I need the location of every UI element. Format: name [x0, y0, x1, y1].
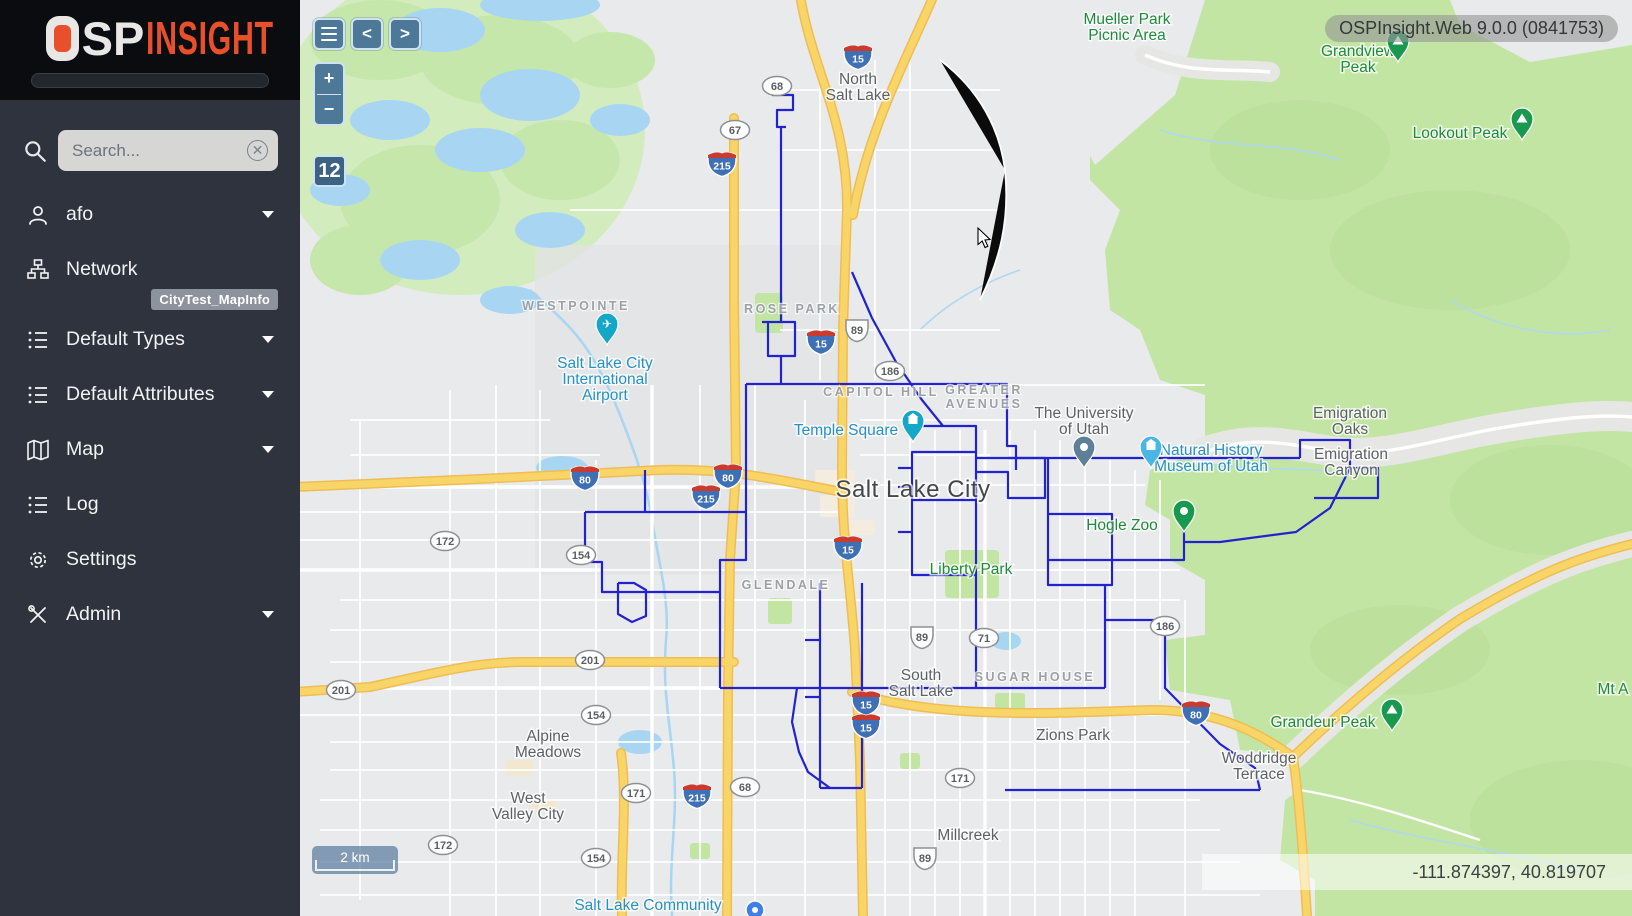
- map-label: Grandeur Peak: [1270, 714, 1375, 731]
- road-shield-171: 171: [946, 769, 975, 788]
- map-prev-button[interactable]: <: [351, 18, 383, 50]
- map-label: Temple Square: [794, 422, 898, 439]
- svg-text:✈: ✈: [602, 317, 612, 331]
- list-icon: [26, 493, 50, 517]
- svg-text:80: 80: [1190, 710, 1202, 722]
- search-clear-icon[interactable]: ✕: [247, 140, 268, 161]
- sidebar-item-log[interactable]: Log: [0, 477, 300, 532]
- map-label: Zions Park: [1036, 727, 1110, 744]
- road-shield-68: 68: [731, 778, 760, 797]
- svg-text:67: 67: [729, 125, 741, 137]
- search-icon: [22, 138, 48, 164]
- svg-text:68: 68: [739, 782, 751, 794]
- basemap-svg: 6867215158915186808021517215415201201154…: [300, 0, 1632, 916]
- sidebar-item-label: Network: [66, 258, 138, 281]
- sidebar-item-default-attributes[interactable]: Default Attributes: [0, 367, 300, 422]
- zoom-in-button[interactable]: +: [315, 64, 343, 94]
- list-icon: [26, 383, 50, 407]
- scale-bracket: [315, 860, 395, 871]
- map-icon: [26, 438, 50, 462]
- network-icon: [26, 258, 50, 282]
- svg-text:80: 80: [722, 473, 734, 485]
- cursor-coordinates: -111.874397, 40.819707: [1202, 854, 1632, 890]
- map-label: EmigrationCanyon: [1314, 446, 1388, 479]
- version-label: OSPInsight.Web 9.0.0 (0841753): [1325, 15, 1618, 42]
- road-shield-154: 154: [567, 546, 596, 565]
- map-label: CAPITOL HILL: [823, 385, 939, 399]
- svg-text:15: 15: [860, 700, 872, 712]
- sidebar-item-label: afo: [66, 203, 93, 226]
- logo-insight-text: INSIGHT: [146, 16, 217, 61]
- ospinsight-app: SPINSIGHT ✕ afo: [0, 0, 1632, 916]
- map-scale: 2 km: [312, 846, 398, 874]
- road-shield-71: 71: [970, 629, 999, 648]
- map-label: Natural HistoryMuseum of Utah: [1154, 442, 1268, 475]
- map-label: Salt Lake City: [835, 476, 990, 503]
- chevron-down-icon: [262, 336, 274, 343]
- sidebar-item-label: Map: [66, 438, 104, 461]
- college-marker[interactable]: [746, 901, 764, 916]
- svg-text:68: 68: [771, 81, 783, 93]
- svg-text:154: 154: [572, 550, 591, 562]
- road-shield-68: 68: [763, 77, 792, 96]
- svg-text:171: 171: [951, 773, 969, 785]
- svg-text:172: 172: [436, 536, 454, 548]
- gear-icon: [26, 548, 50, 572]
- sidebar-item-admin[interactable]: Admin: [0, 587, 300, 642]
- map-menu-button[interactable]: [313, 18, 345, 50]
- hamburger-icon: [321, 27, 337, 29]
- map-label: GLENDALE: [742, 578, 831, 592]
- road-shield-172: 172: [431, 532, 460, 551]
- road-shield-154: 154: [582, 706, 611, 725]
- road-shield-172: 172: [429, 836, 458, 855]
- svg-text:15: 15: [842, 545, 854, 557]
- zoom-level-badge: 12: [313, 155, 346, 187]
- sidebar-item-settings[interactable]: Settings: [0, 532, 300, 587]
- sidebar-item-label: Admin: [66, 603, 121, 626]
- app-logo: SPINSIGHT: [46, 13, 255, 65]
- svg-text:80: 80: [579, 475, 591, 487]
- svg-text:15: 15: [815, 339, 827, 351]
- logo-sp-text: SP: [82, 16, 145, 61]
- sidebar-item-label: Default Types: [66, 328, 185, 351]
- chevron-down-icon: [262, 391, 274, 398]
- search-field-wrap: ✕: [58, 130, 278, 171]
- svg-text:201: 201: [332, 685, 350, 697]
- map-label: Hogle Zoo: [1086, 517, 1158, 534]
- list-icon: [26, 328, 50, 352]
- svg-text:201: 201: [581, 655, 599, 667]
- svg-text:171: 171: [627, 788, 645, 800]
- road-shield-154: 154: [582, 849, 611, 868]
- road-shield-186: 186: [876, 362, 905, 381]
- sidebar-item-label: Log: [66, 493, 99, 516]
- svg-text:89: 89: [916, 632, 928, 644]
- road-shield-171: 171: [622, 784, 651, 803]
- svg-text:186: 186: [1156, 621, 1174, 633]
- sidebar-item-label: Settings: [66, 548, 136, 571]
- map-label: Liberty Park: [930, 561, 1013, 578]
- sidebar-item-map[interactable]: Map: [0, 422, 300, 477]
- road-shield-89: 89: [911, 627, 933, 649]
- chevron-down-icon: [262, 446, 274, 453]
- network-map-badge: CityTest_MapInfo: [151, 289, 278, 310]
- zoom-out-button[interactable]: −: [315, 95, 343, 125]
- sidebar-item-default-types[interactable]: Default Types: [0, 312, 300, 367]
- svg-text:89: 89: [919, 853, 931, 865]
- road-shield-89: 89: [914, 848, 936, 870]
- map-label: Mt A: [1597, 681, 1629, 698]
- user-icon: [26, 203, 50, 227]
- map-label: Mueller ParkPicnic Area: [1084, 11, 1171, 44]
- chevron-down-icon: [262, 611, 274, 618]
- map-canvas[interactable]: 6867215158915186808021517215415201201154…: [300, 0, 1632, 916]
- map-label: GREATERAVENUES: [945, 383, 1023, 411]
- sidebar-nav: afo Network CityTest_MapInfo: [0, 187, 300, 642]
- svg-text:15: 15: [860, 723, 872, 735]
- app-header: SPINSIGHT: [0, 0, 300, 100]
- road-shield-67: 67: [721, 121, 750, 140]
- road-shield-89: 89: [846, 320, 868, 342]
- map-label: Lookout Peak: [1413, 125, 1508, 142]
- search-input[interactable]: [58, 130, 278, 171]
- sidebar: SPINSIGHT ✕ afo: [0, 0, 300, 916]
- svg-text:154: 154: [587, 710, 606, 722]
- map-label: WESTPOINTE: [522, 299, 630, 313]
- map-next-button[interactable]: >: [389, 18, 421, 50]
- svg-text:154: 154: [587, 853, 606, 865]
- svg-text:89: 89: [851, 325, 863, 337]
- sidebar-item-afo[interactable]: afo: [0, 187, 300, 242]
- sidebar-item-label: Default Attributes: [66, 383, 215, 406]
- svg-text:15: 15: [852, 54, 864, 66]
- road-shield-201: 201: [576, 651, 605, 670]
- svg-text:215: 215: [688, 793, 706, 805]
- svg-text:215: 215: [697, 494, 715, 506]
- road-shield-201: 201: [327, 681, 356, 700]
- zoom-control: + −: [313, 62, 345, 126]
- map-label: ROSE PARK: [744, 302, 840, 316]
- search-row: ✕: [22, 130, 278, 171]
- map-label: Millcreek: [937, 827, 998, 844]
- svg-text:186: 186: [881, 366, 899, 378]
- road-shield-186: 186: [1151, 617, 1180, 636]
- network-badge-row: CityTest_MapInfo: [0, 289, 278, 310]
- svg-text:215: 215: [713, 161, 731, 173]
- logo-o-mark: [46, 16, 79, 61]
- map-label: SUGAR HOUSE: [975, 670, 1096, 684]
- svg-text:172: 172: [434, 840, 452, 852]
- svg-text:71: 71: [978, 633, 990, 645]
- chevron-down-icon: [262, 211, 274, 218]
- map-label: Salt Lake Community: [574, 897, 722, 914]
- logo-underline-bar: [31, 73, 269, 88]
- tools-icon: [26, 603, 50, 627]
